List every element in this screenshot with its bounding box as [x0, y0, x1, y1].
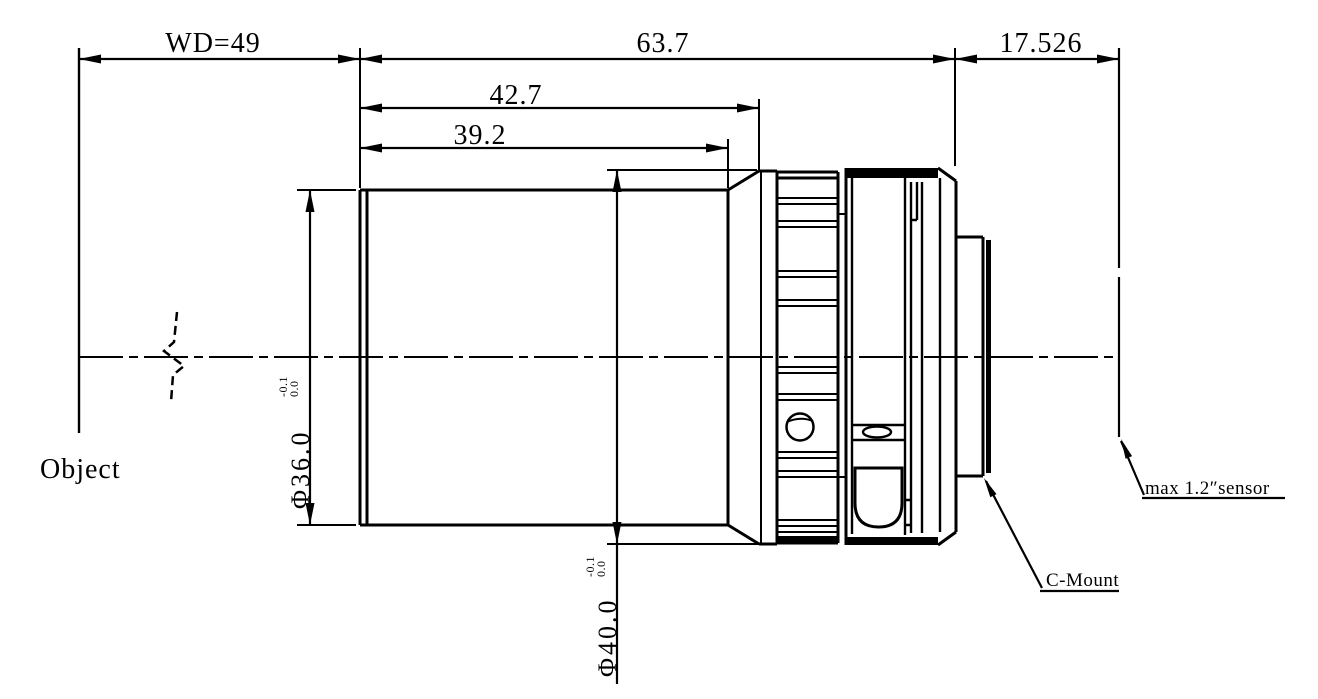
drawing-canvas: Object	[0, 0, 1318, 699]
arrowhead	[737, 104, 759, 113]
dim-working-distance: WD=49	[165, 28, 260, 59]
arrowhead	[360, 144, 382, 153]
arrowhead	[1097, 55, 1119, 64]
c-mount-label: C-Mount	[1046, 570, 1119, 591]
u-cutout	[855, 468, 902, 527]
arrowhead	[360, 104, 382, 113]
arrowhead	[955, 55, 977, 64]
rear-ring-bottom-band	[846, 537, 938, 545]
rear-ring-top-band	[846, 168, 938, 178]
dim-barrel-section: 39.2	[454, 120, 507, 151]
arrowhead	[933, 55, 955, 64]
dimension-lines	[79, 59, 1119, 684]
arrowhead	[79, 55, 101, 64]
level-window	[863, 427, 891, 438]
focus-ring-grooves	[777, 198, 838, 532]
dim-ring-diameter-value: Φ40.0	[593, 597, 622, 677]
dim-flange-back: 17.526	[1000, 28, 1083, 59]
dim-front-section: 42.7	[490, 80, 543, 111]
sensor-callout: max 1.2″sensor	[1121, 441, 1285, 499]
arrowhead	[306, 190, 315, 212]
arrowhead	[613, 170, 622, 192]
c-mount-callout: C-Mount	[986, 481, 1119, 591]
arrowhead	[613, 522, 622, 544]
focus-ring-bottom-band	[777, 536, 838, 543]
lens-mechanical-drawing: Object	[0, 0, 1318, 699]
sensor-label: max 1.2″sensor	[1145, 478, 1270, 499]
dimension-labels: WD=49 63.7 17.526 42.7 39.2 Φ36.0 0.0 -0…	[165, 28, 1082, 677]
dim-ring-diameter-tol-lower: -0.1	[583, 556, 597, 577]
dim-front-diameter-value: Φ36.0	[286, 429, 315, 509]
dim-total-length: 63.7	[637, 28, 690, 59]
set-screw-slot	[787, 419, 813, 422]
arrowhead	[360, 55, 382, 64]
set-screw	[787, 414, 814, 441]
arrowhead	[338, 55, 360, 64]
object-label: Object	[40, 454, 121, 485]
dimension-arrowheads	[79, 55, 1132, 545]
dim-front-diameter-tol-lower: -0.1	[276, 376, 290, 397]
arrowhead	[706, 144, 728, 153]
